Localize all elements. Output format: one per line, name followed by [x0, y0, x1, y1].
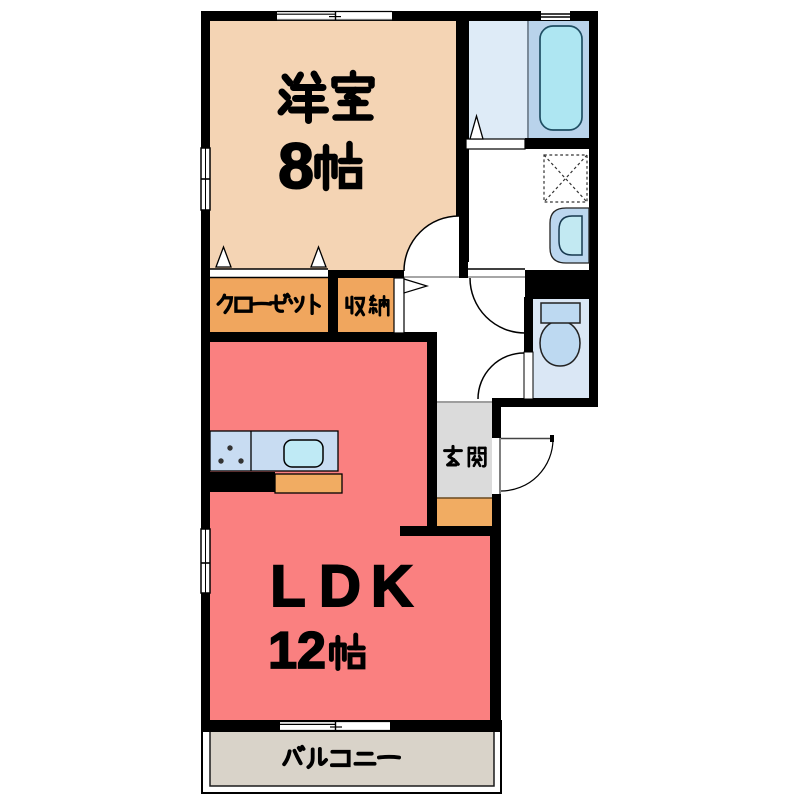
svg-text:8: 8	[278, 130, 314, 202]
svg-text:D: D	[319, 554, 361, 619]
svg-text:L: L	[270, 554, 305, 619]
svg-text:K: K	[371, 554, 413, 619]
svg-text:12: 12	[268, 622, 326, 680]
